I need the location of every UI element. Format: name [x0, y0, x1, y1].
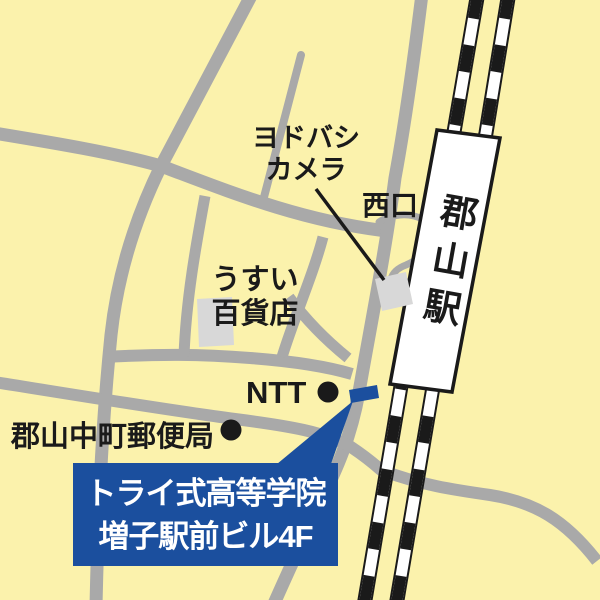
usui-label-line1: うすい	[175, 263, 335, 297]
road-horizontal-1	[104, 355, 352, 374]
destination-callout-box: トライ式高等学院 増子駅前ビル4F	[73, 463, 338, 566]
area-map: ヨドバシ カメラ 西口 郡山駅 うすい 百貨店 NTT 郡山中町郵便局 トライ式…	[0, 0, 600, 600]
ntt-dot	[318, 382, 339, 403]
yodobashi-camera-label-line1: ヨドバシ	[226, 122, 386, 154]
yodobashi-camera-label: ヨドバシ カメラ	[226, 122, 386, 186]
west-exit-label: 西口	[362, 184, 418, 224]
usui-department-store-label: うすい 百貨店	[175, 263, 335, 331]
usui-label-line2: 百貨店	[175, 297, 335, 331]
yodobashi-camera-label-line2: カメラ	[226, 154, 386, 186]
ntt-label: NTT	[246, 375, 306, 411]
destination-address: 増子駅前ビル4F	[73, 515, 338, 558]
destination-name: トライ式高等学院	[73, 472, 338, 515]
post-office-dot	[221, 420, 242, 441]
post-office-label: 郡山中町郵便局	[11, 413, 214, 455]
